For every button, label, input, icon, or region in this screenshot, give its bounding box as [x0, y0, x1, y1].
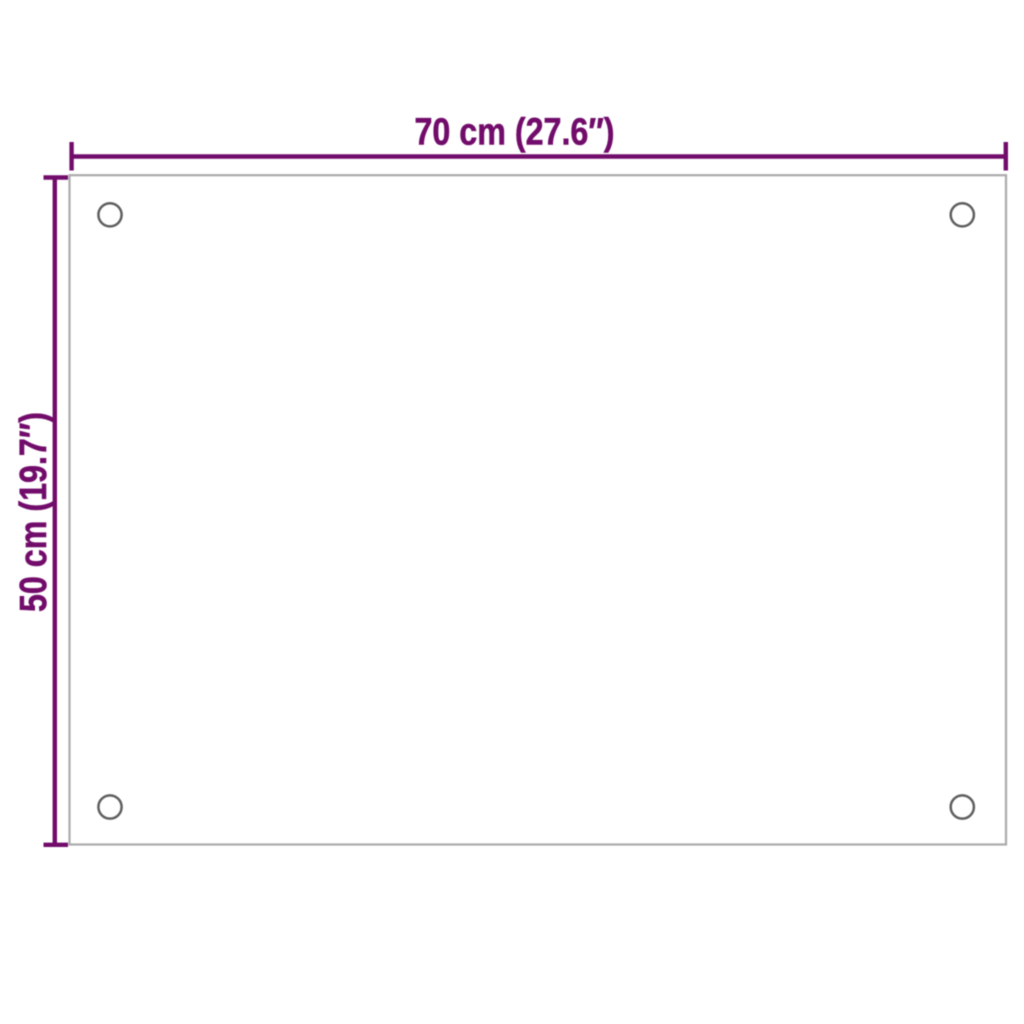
svg-text:50 cm (19.7″): 50 cm (19.7″)	[13, 412, 55, 612]
svg-text:70 cm (27.6″): 70 cm (27.6″)	[415, 112, 615, 154]
